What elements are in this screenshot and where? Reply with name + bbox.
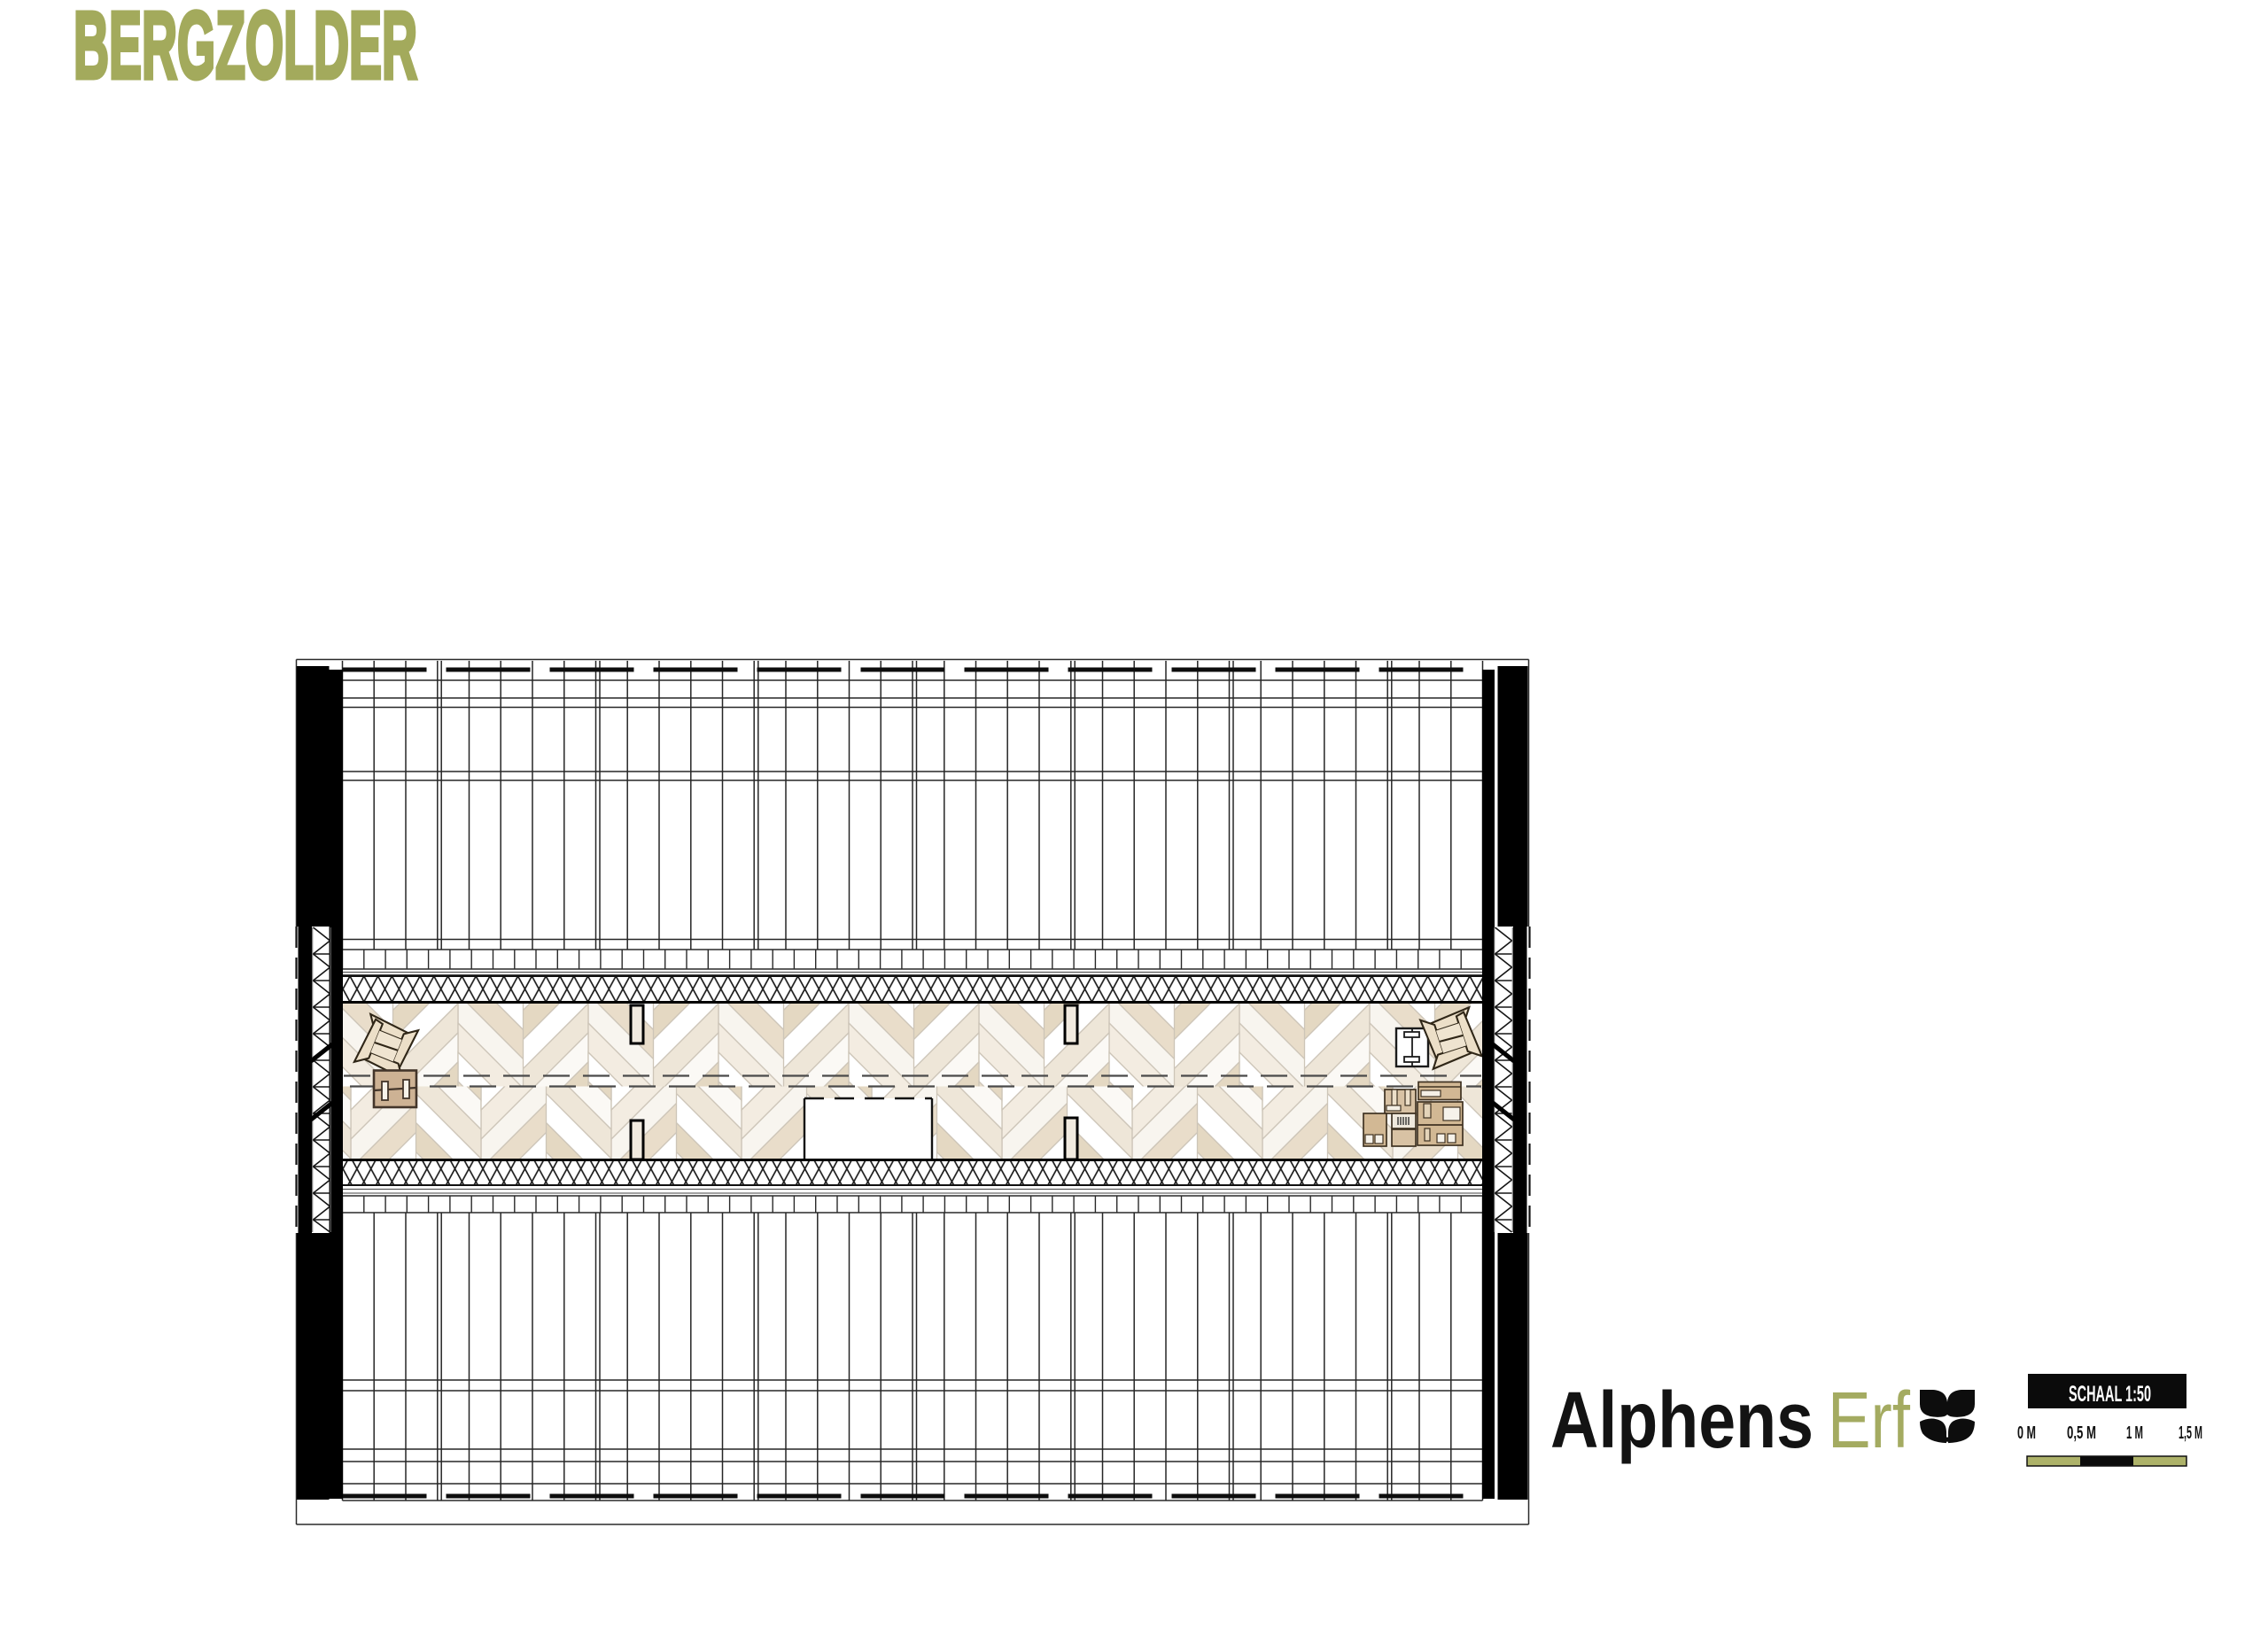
svg-text:Erf: Erf	[1828, 1376, 1911, 1465]
svg-text:1,5 M: 1,5 M	[2179, 1423, 2202, 1443]
svg-text:0,5 M: 0,5 M	[2067, 1423, 2096, 1443]
svg-text:SCHAAL 1:50: SCHAAL 1:50	[2069, 1382, 2151, 1407]
svg-text:BERGZOLDER: BERGZOLDER	[74, 0, 417, 98]
svg-text:0 M: 0 M	[2017, 1423, 2036, 1443]
svg-text:Alphens: Alphens	[1550, 1376, 1814, 1465]
svg-text:1 M: 1 M	[2126, 1423, 2143, 1443]
